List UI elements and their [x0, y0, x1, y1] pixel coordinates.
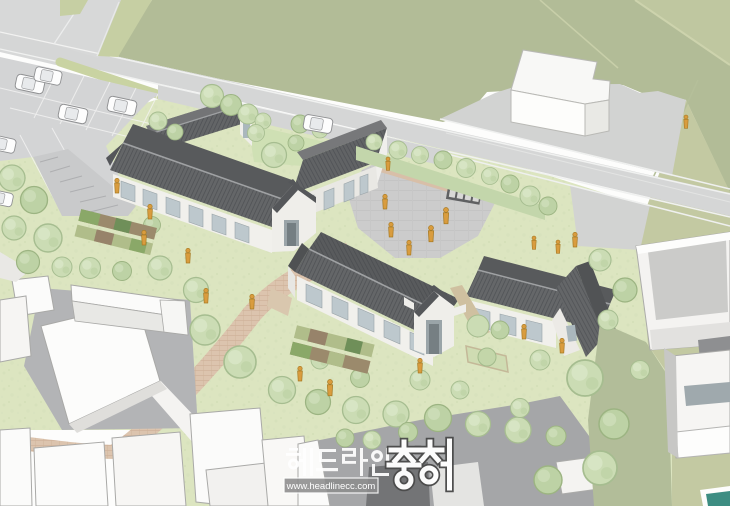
- svg-text:www.headlinecc.com: www.headlinecc.com: [286, 481, 376, 492]
